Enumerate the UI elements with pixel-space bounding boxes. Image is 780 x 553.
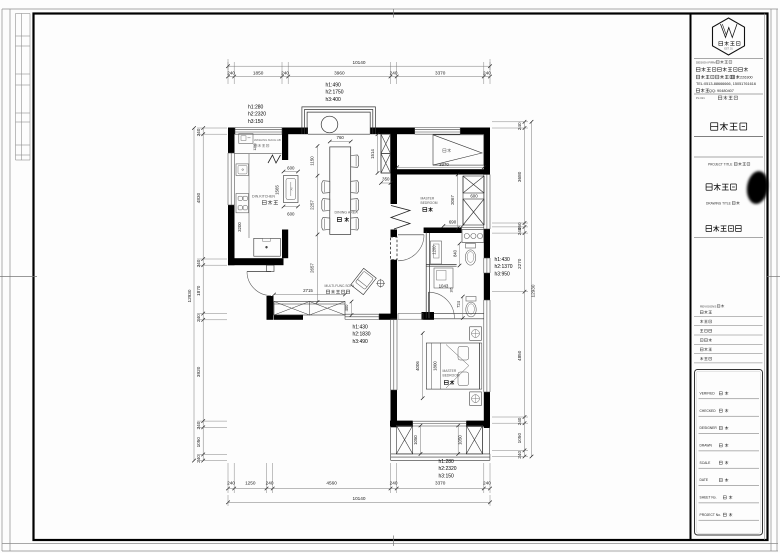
svg-text:DIN.KITCHEN: DIN.KITCHEN [252,195,275,199]
svg-text:3370: 3370 [439,162,449,167]
svg-text:2715: 2715 [303,288,313,293]
svg-text:10140: 10140 [352,496,365,501]
svg-text:10140: 10140 [352,60,365,65]
svg-text:MULTI-FUNC.SOFA: MULTI-FUNC.SOFA [325,284,355,288]
svg-text:1850: 1850 [253,70,264,75]
svg-text:600: 600 [470,194,478,199]
svg-text:MASTER: MASTER [443,369,457,373]
svg-text:PROJECT TITLE: PROJECT TITLE [708,163,732,167]
svg-text:BEDROOM: BEDROOM [421,201,438,205]
svg-text:12930: 12930 [531,284,536,297]
svg-text:4006: 4006 [415,361,420,371]
svg-text:4850: 4850 [517,350,522,361]
svg-text:DINING AREA: DINING AREA [335,211,359,215]
svg-text:240: 240 [281,70,289,75]
svg-text:12930: 12930 [187,289,192,302]
svg-text:400: 400 [344,304,349,312]
svg-text:2067: 2067 [450,195,455,205]
svg-text:h1:490: h1:490 [326,83,342,89]
svg-text:CHECKED: CHECKED [700,409,717,413]
svg-text:3370: 3370 [435,70,446,75]
svg-text:h3:400: h3:400 [326,97,342,103]
svg-text:h2:2320: h2:2320 [248,112,266,118]
svg-text:240: 240 [196,421,201,429]
svg-text:DRAWN: DRAWN [700,444,713,448]
svg-text:1870: 1870 [196,285,201,296]
svg-text:QQ: 90480407: QQ: 90480407 [709,89,734,93]
svg-text:3200: 3200 [237,222,242,232]
svg-text:240: 240 [196,128,201,136]
svg-text:3960: 3960 [334,70,345,75]
svg-text:4560: 4560 [326,481,337,486]
svg-text:DRAWING TITLE: DRAWING TITLE [706,202,731,206]
svg-text:BEDROOM: BEDROOM [443,374,460,378]
svg-text:3920: 3920 [196,366,201,377]
svg-text:REVISIONS: REVISIONS [700,305,716,309]
svg-text:3680: 3680 [517,171,522,182]
svg-text:240: 240 [517,451,522,459]
svg-text:240: 240 [227,481,235,486]
svg-text:1043: 1043 [439,284,449,289]
svg-text:WASHING MACH.AB: WASHING MACH.AB [254,138,281,142]
svg-text:TEL:0513-88666666, 15051761616: TEL:0513-88666666, 15051761616 [696,82,756,86]
svg-text:165: 165 [449,287,453,293]
svg-text:PROJECT No.: PROJECT No. [700,513,721,517]
svg-text:h3:150: h3:150 [248,119,264,125]
svg-text:600: 600 [287,165,295,170]
svg-text:240: 240 [196,259,201,267]
svg-text:240: 240 [196,455,201,463]
svg-text:h1:430: h1:430 [353,325,369,331]
svg-text:h3:950: h3:950 [495,271,511,277]
svg-text:1514: 1514 [370,149,375,159]
svg-text:240: 240 [227,70,235,75]
svg-text:h1:430: h1:430 [495,257,511,263]
svg-text:240: 240 [483,70,491,75]
svg-text:3370: 3370 [435,481,446,486]
svg-text:690: 690 [449,219,457,224]
svg-text:240: 240 [390,481,398,486]
svg-text:840: 840 [453,249,458,257]
svg-text:2270: 2270 [517,258,522,269]
svg-text:1200: 1200 [432,245,437,255]
svg-text:240: 240 [483,481,491,486]
svg-text:1800: 1800 [432,361,437,371]
svg-text:1050: 1050 [517,432,522,443]
svg-text:SHEET No.: SHEET No. [700,496,717,500]
svg-text:h2:2320: h2:2320 [439,466,457,472]
svg-text:240: 240 [196,314,201,322]
svg-text:SCALE: SCALE [700,461,712,465]
svg-text:h1:280: h1:280 [439,459,455,465]
svg-text:1050: 1050 [196,437,201,448]
svg-text:h2:1750: h2:1750 [326,90,344,96]
svg-text:600: 600 [287,211,295,216]
svg-text:1250: 1250 [245,481,256,486]
svg-text:226300: 226300 [740,76,753,80]
svg-text:2257: 2257 [310,200,315,210]
svg-text:240: 240 [390,70,398,75]
svg-text:760: 760 [337,135,345,140]
svg-text:DESIGNER: DESIGNER [700,426,718,430]
svg-text:350: 350 [382,177,390,182]
svg-text:1150: 1150 [310,156,315,166]
svg-text:240: 240 [517,227,522,235]
svg-text:240: 240 [266,481,274,486]
svg-text:1050: 1050 [413,435,418,445]
svg-text:h2:1830: h2:1830 [353,332,371,338]
svg-text:724: 724 [456,300,461,308]
svg-text:240: 240 [517,417,522,425]
svg-text:EST. 01: EST. 01 [724,48,733,51]
svg-text:1050: 1050 [458,435,463,445]
svg-text:DATE: DATE [700,478,709,482]
svg-text:1565: 1565 [274,185,279,195]
svg-text:2657: 2657 [310,263,315,273]
svg-text:h3:150: h3:150 [439,473,455,479]
svg-text:PL:021: PL:021 [696,96,705,100]
svg-text:VERIFIED: VERIFIED [700,392,716,396]
svg-text:DESIGN FIRM: DESIGN FIRM [696,60,716,64]
svg-text:AI: AI [289,187,293,190]
svg-text:h2:1370: h2:1370 [495,264,513,270]
svg-text:240: 240 [517,122,522,130]
svg-text:h3:490: h3:490 [353,339,369,345]
svg-text:h1:280: h1:280 [248,105,264,111]
svg-text:4830: 4830 [196,192,201,203]
